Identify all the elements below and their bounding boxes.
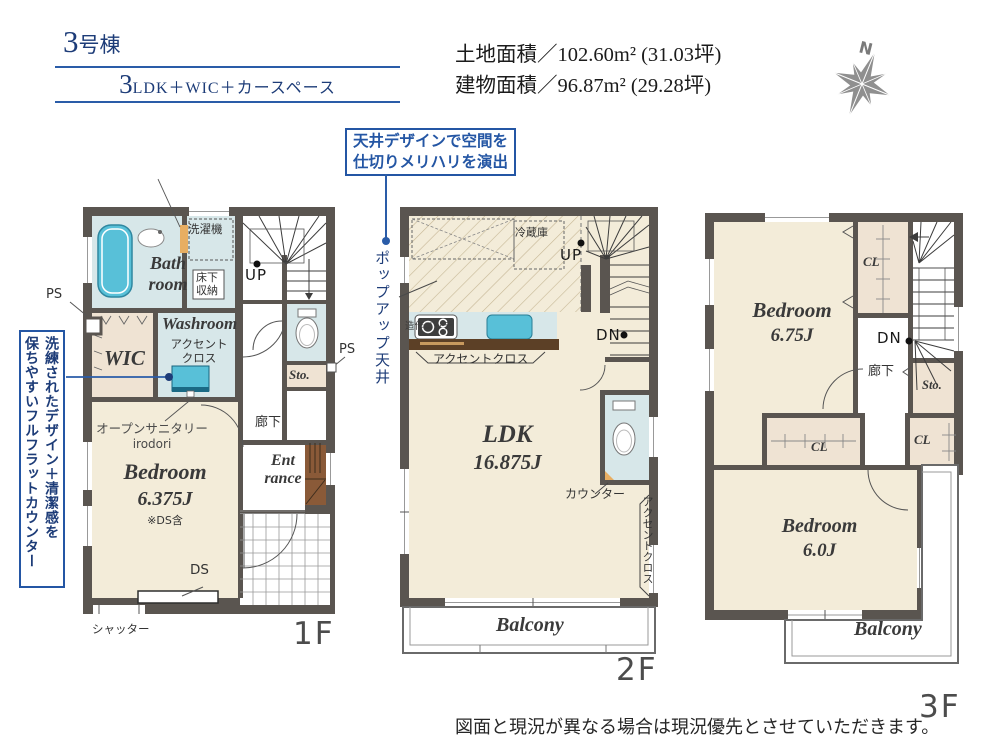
counter-label: カウンター bbox=[565, 485, 625, 502]
closet-right-label: CL bbox=[914, 432, 931, 448]
closet-mid-label: CL bbox=[811, 439, 828, 455]
accent-cloth-vertical-label: アクセントクロス bbox=[639, 496, 655, 596]
compass-north-label: N bbox=[857, 37, 875, 59]
ps-left-label: PS bbox=[46, 287, 62, 302]
room-storage-1f: Sto. bbox=[289, 367, 310, 383]
room-bedroom-1f: Bedroom 6.375J ※DS含 bbox=[105, 458, 225, 528]
niche-label: 造作ニッチ bbox=[405, 318, 453, 332]
closet-top-label: CL bbox=[863, 254, 880, 270]
balcony-label-2f: Balcony bbox=[496, 614, 564, 637]
stairs-up-label-2f: UP bbox=[560, 246, 582, 264]
ps-right-label: PS bbox=[339, 342, 355, 357]
stairs-down-label-2f: DN bbox=[596, 326, 621, 344]
fridge-label: 冷蔵庫 bbox=[515, 224, 548, 240]
floor1-tag: 1F bbox=[293, 616, 335, 652]
disclaimer: 図面と現況が異なる場合は現況優先とさせていただきます。 bbox=[455, 713, 939, 739]
room-bedroom2-3f: Bedroom 6.0J bbox=[767, 514, 872, 563]
annotation-layer: N bbox=[0, 0, 1000, 750]
accent-cloth-label-2f: アクセントクロス bbox=[433, 350, 528, 367]
floorplan-sheet: { "palette":{"accent_blue":"#2a5ca8","na… bbox=[0, 0, 1000, 750]
washer-label: 洗濯機 bbox=[188, 221, 223, 237]
shutter-label: シャッター bbox=[92, 621, 150, 637]
room-ldk: LDK 16.875J bbox=[450, 420, 565, 475]
open-sanitary-label: オープンサニタリー irodori bbox=[94, 418, 210, 451]
ds-label: DS bbox=[190, 562, 209, 578]
hallway-label-3f: 廊下 bbox=[868, 360, 894, 379]
underfloor-storage-label: 床下 収納 bbox=[193, 271, 221, 297]
room-washroom: Washroom bbox=[162, 314, 237, 334]
accent-cloth-label-1f: アクセント クロス bbox=[168, 337, 230, 365]
room-entrance: Ent rance bbox=[258, 452, 308, 488]
room-wic: WIC bbox=[104, 346, 145, 371]
room-bedroom1-3f: Bedroom 6.75J bbox=[737, 297, 847, 348]
floor2-tag: 2F bbox=[616, 652, 658, 688]
hallway-label-1f: 廊下 bbox=[255, 411, 281, 430]
room-storage-3f: Sto. bbox=[922, 378, 942, 393]
balcony-label-3f: Balcony bbox=[854, 618, 922, 641]
stairs-up-label: UP bbox=[245, 266, 267, 284]
stairs-down-label-3f: DN bbox=[877, 329, 902, 347]
